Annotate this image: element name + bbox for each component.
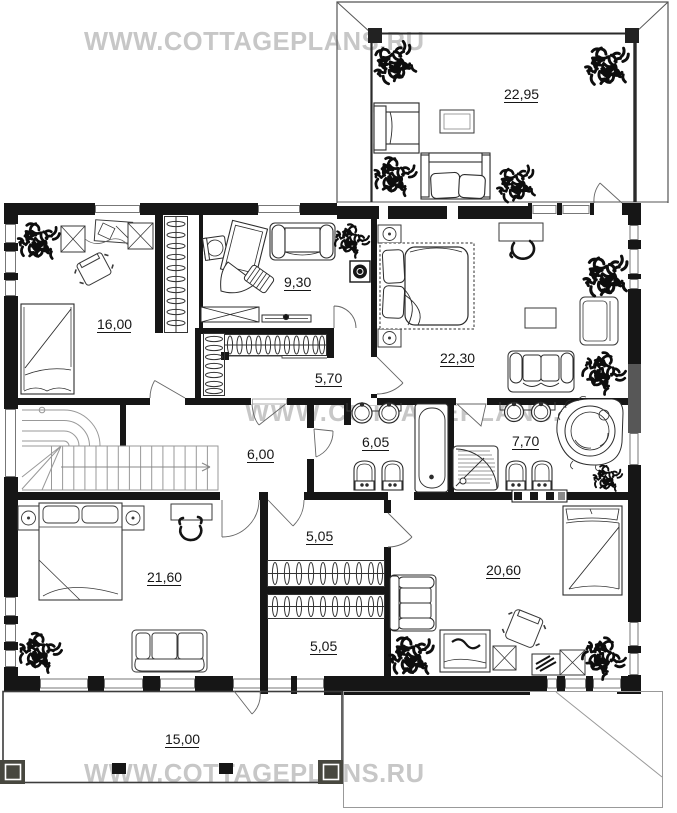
svg-text:22,30: 22,30 bbox=[440, 350, 475, 366]
svg-text:20,60: 20,60 bbox=[486, 562, 521, 578]
svg-text:5,05: 5,05 bbox=[310, 638, 337, 654]
svg-text:15,00: 15,00 bbox=[165, 731, 200, 747]
svg-text:6,00: 6,00 bbox=[247, 446, 274, 462]
svg-text:5,05: 5,05 bbox=[306, 528, 333, 544]
svg-text:9,30: 9,30 bbox=[284, 274, 311, 290]
svg-text:6,05: 6,05 bbox=[362, 434, 389, 450]
svg-text:WWW.COTTAGEPLANS.RU: WWW.COTTAGEPLANS.RU bbox=[84, 760, 425, 788]
svg-text:5,70: 5,70 bbox=[315, 370, 342, 386]
svg-text:21,60: 21,60 bbox=[147, 569, 182, 585]
svg-text:7,70: 7,70 bbox=[512, 433, 539, 449]
svg-text:22,95: 22,95 bbox=[504, 86, 539, 102]
svg-text:16,00: 16,00 bbox=[97, 316, 132, 332]
